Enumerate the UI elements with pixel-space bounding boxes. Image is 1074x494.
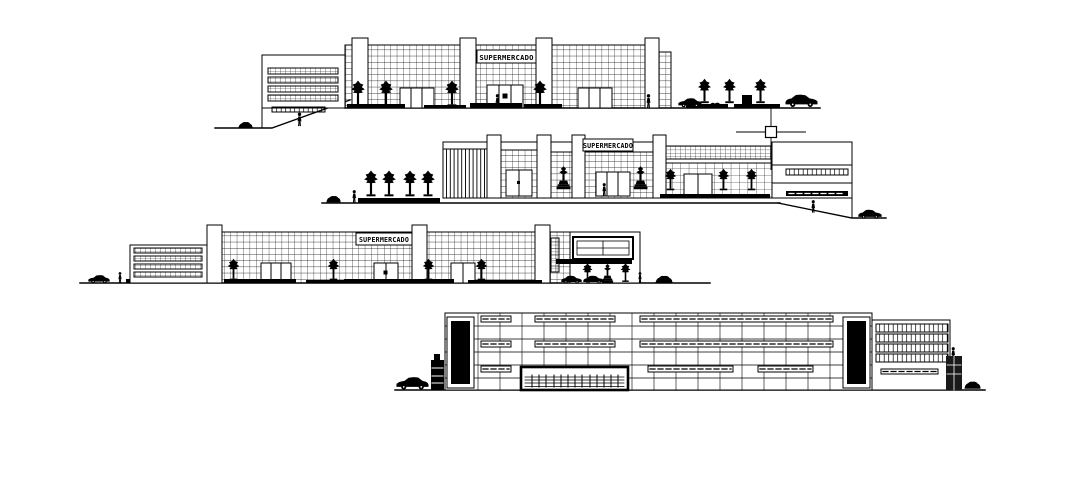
left-office-block [130,245,207,283]
window-strip [786,169,848,175]
crate-stack [431,354,444,390]
car-icon [88,275,109,283]
window-row [876,334,948,342]
service-facade [445,313,872,390]
tree-icon [698,79,711,103]
person-icon [118,272,121,283]
window-strip [268,95,338,101]
tree-icon [382,171,396,197]
canopy [556,259,632,264]
elevation-4 [395,313,985,390]
supermercado-sign: SUPERMERCADO [583,139,633,151]
window-strip [134,264,202,269]
person-icon [352,190,356,203]
elevation-3: SUPERMERCADO [80,225,710,284]
dock-window [521,367,628,390]
right-wing [660,146,772,198]
right-wing [872,320,950,390]
elevation-drawing: SUPERMERCADO [0,0,1074,494]
cad-canvas[interactable]: SUPERMERCADO [0,0,1074,494]
car-icon [396,377,428,389]
ground-line [322,203,886,218]
window-row [876,324,948,332]
left-trees [358,171,440,203]
rock-icon [326,196,340,202]
striped-block [443,142,487,198]
tree-icon [421,171,435,197]
supermercado-sign: SUPERMERCADO [477,50,536,63]
parked-car-icon [238,122,252,128]
rock-icon [964,382,980,389]
window-row [876,354,948,362]
pillar [653,135,666,198]
door [506,170,532,196]
door [596,172,630,196]
tree-icon [364,171,378,197]
tree-icon [723,79,736,103]
sign-label: SUPERMERCADO [359,236,409,244]
pickbox [766,127,777,138]
supermercado-sign: SUPERMERCADO [356,233,412,245]
sign-label: SUPERMERCADO [479,53,533,62]
window-row [876,344,948,352]
loading-door-right [843,317,870,388]
feature-window [573,237,633,259]
window-strip [268,86,338,92]
window-strip [134,256,202,261]
elevation-2: SUPERMERCADO [322,135,886,219]
window-strip [272,107,325,112]
window-strip [268,77,338,83]
car-icon [785,95,817,107]
window-strip [268,68,338,74]
pillar [487,135,501,198]
rock-icon [656,276,673,284]
sign-label: SUPERMERCADO [583,142,633,150]
louver-band [666,146,772,159]
ladder [551,238,559,272]
tree-icon [754,79,767,103]
right-wing [659,52,671,108]
window-strip [134,272,202,277]
main-facade: SUPERMERCADO [207,225,570,283]
door [684,174,712,196]
kiosk [742,95,752,108]
right-landscape [678,79,817,108]
loading-door-left [447,317,474,388]
person-icon [298,113,302,126]
elevation-1: SUPERMERCADO [215,38,820,128]
tree-icon [403,171,417,197]
main-facade: SUPERMERCADO [345,38,671,108]
window-strip [134,248,202,253]
pillar [537,135,551,198]
